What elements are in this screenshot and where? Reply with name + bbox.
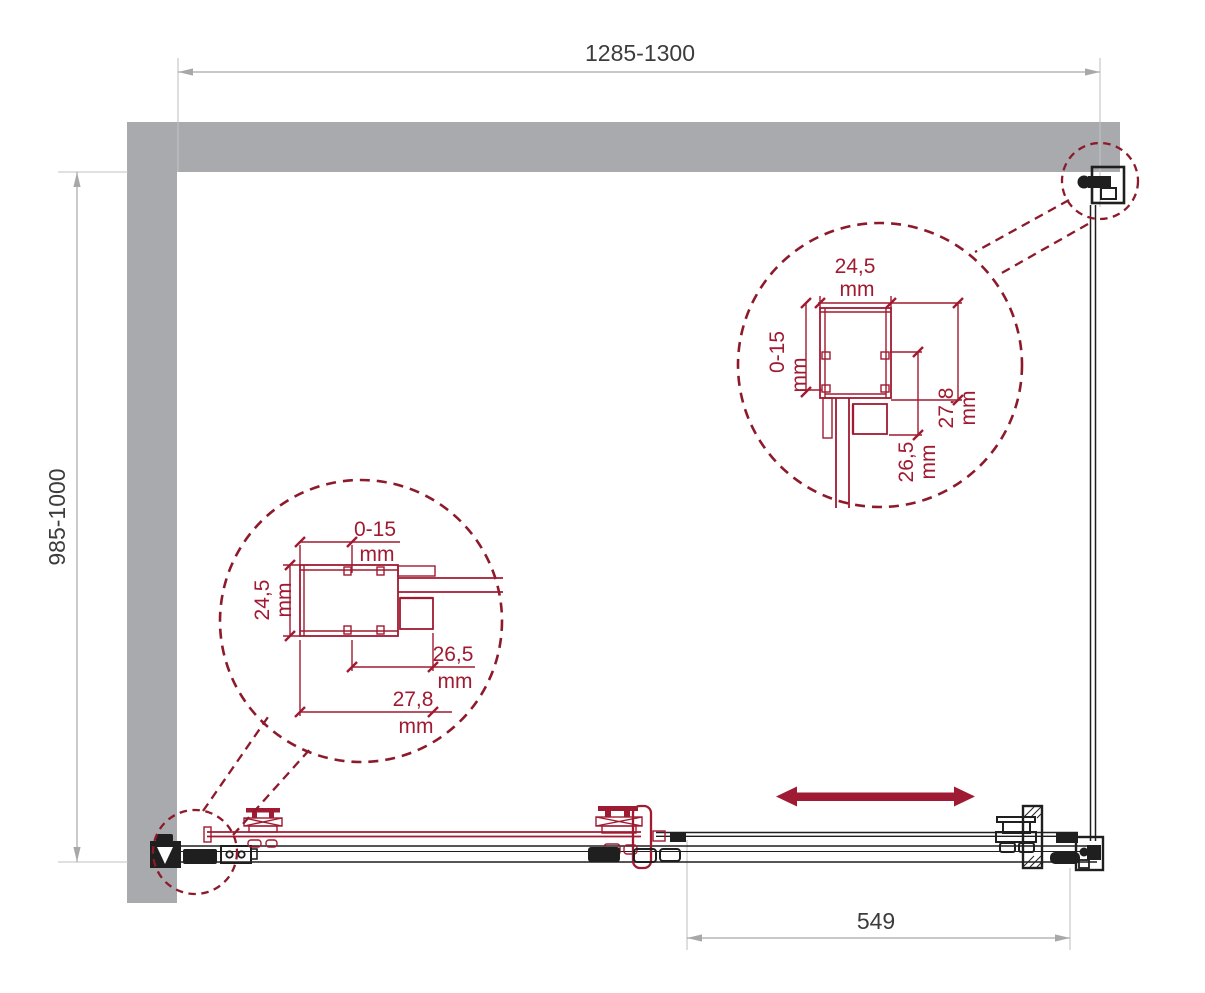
opening-dimension: 549: [687, 908, 1070, 942]
detail-right-top-dimension: 24,5 mm: [815, 255, 896, 310]
detail-circle-right: 24,5 mm 0-15 mm 27,8 mm: [738, 223, 1022, 508]
width-dimension-label: 1285-1300: [585, 40, 695, 66]
detail-left-bottom-dimension: 27,8 mm: [295, 640, 452, 738]
detail-left-side-unit-label: mm: [273, 583, 296, 618]
profile-section-right: [820, 308, 891, 508]
detail-left-top-unit-label: mm: [360, 543, 395, 566]
detail-right-side-value-label: 0-15: [766, 331, 789, 373]
detail-right-outer-value-label: 27,8: [935, 388, 958, 429]
slide-direction-arrow-icon: [776, 787, 975, 807]
detail-right-outer-unit-label: mm: [957, 391, 980, 426]
profile-section-left: [300, 565, 503, 636]
detail-left-side-dimension: 24,5 mm: [251, 560, 300, 641]
detail-right-inner-value-label: 26,5: [895, 442, 918, 483]
width-dimension: 1285-1300: [178, 40, 1100, 76]
detail-right-top-unit-label: mm: [840, 278, 875, 301]
depth-dimension-label: 985-1000: [44, 468, 70, 565]
detail-right-inner-unit-label: mm: [917, 445, 940, 480]
detail-circle-left: 0-15 mm 24,5 mm 26,5 mm: [220, 480, 503, 762]
detail-left-inner-dimension: 26,5 mm: [347, 633, 475, 693]
detail-left-top-value-label: 0-15: [354, 518, 396, 541]
roller-assembly-left: [244, 808, 282, 847]
top-wall-profile-fitting: [1078, 167, 1125, 203]
detail-zoom-cone-right: [975, 200, 1088, 274]
detail-left-inner-value-label: 26,5: [433, 643, 474, 666]
technical-drawing: 1285-1300 985-1000 549: [0, 0, 1205, 993]
wall-top: [127, 122, 1120, 172]
extension-lines: [58, 58, 1100, 950]
side-glass-panel: [1091, 205, 1096, 841]
detail-right-top-value-label: 24,5: [835, 255, 876, 278]
wall-left: [127, 172, 177, 903]
detail-right-side-dimension: 0-15 mm: [766, 298, 822, 397]
detail-left-side-value-label: 24,5: [251, 580, 274, 621]
corner-bracket: [1076, 837, 1103, 870]
detail-left-bottom-value-label: 27,8: [393, 688, 434, 711]
detail-left-inner-unit-label: mm: [438, 670, 473, 693]
detail-left-bottom-unit-label: mm: [399, 715, 434, 738]
opening-dimension-label: 549: [857, 908, 895, 934]
detail-right-side-unit-label: mm: [788, 358, 811, 393]
detail-right-outer-dimension: 27,8 mm: [891, 298, 980, 428]
detail-right-inner-dimension: 26,5 mm: [889, 347, 940, 482]
depth-dimension: 985-1000: [44, 172, 81, 862]
